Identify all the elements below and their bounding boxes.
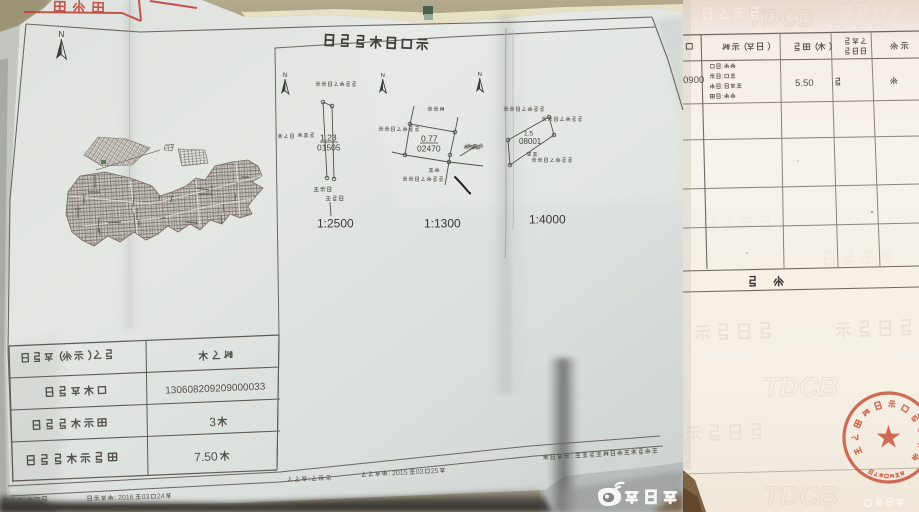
svg-text:1:1300: 1:1300 [424,216,461,230]
svg-text:25: 25 [431,468,439,475]
svg-text::: : [721,73,723,80]
svg-text:1:2500: 1:2500 [317,216,354,230]
svg-text:1:4000: 1:4000 [529,212,566,226]
svg-text:: 2015: : 2015 [388,470,408,478]
svg-text:03: 03 [142,494,150,501]
svg-text:03: 03 [416,469,424,476]
svg-text::: : [721,93,723,100]
svg-text:: 2016: : 2016 [114,494,134,502]
svg-text:02470: 02470 [417,143,441,153]
svg-text:N: N [58,29,64,39]
svg-text:7.50: 7.50 [194,449,218,464]
svg-text::: : [721,63,723,70]
svg-text::: : [308,476,310,483]
svg-text:N: N [283,72,288,79]
svg-text:3: 3 [209,415,217,429]
svg-text:5.50: 5.50 [795,78,814,89]
svg-text:N: N [478,72,482,78]
svg-text:0.77: 0.77 [421,133,438,143]
svg-text:TDCB: TDCB [763,481,838,511]
svg-text::: : [721,83,723,90]
svg-text:01505: 01505 [317,142,341,152]
svg-text:08001: 08001 [519,137,542,146]
svg-text:24: 24 [157,493,165,500]
svg-text::: : [24,497,26,504]
svg-text:1.23: 1.23 [320,132,337,142]
svg-text:TDCB: TDCB [763,372,838,402]
svg-text:0900: 0900 [683,75,704,86]
svg-text:N: N [381,73,385,79]
